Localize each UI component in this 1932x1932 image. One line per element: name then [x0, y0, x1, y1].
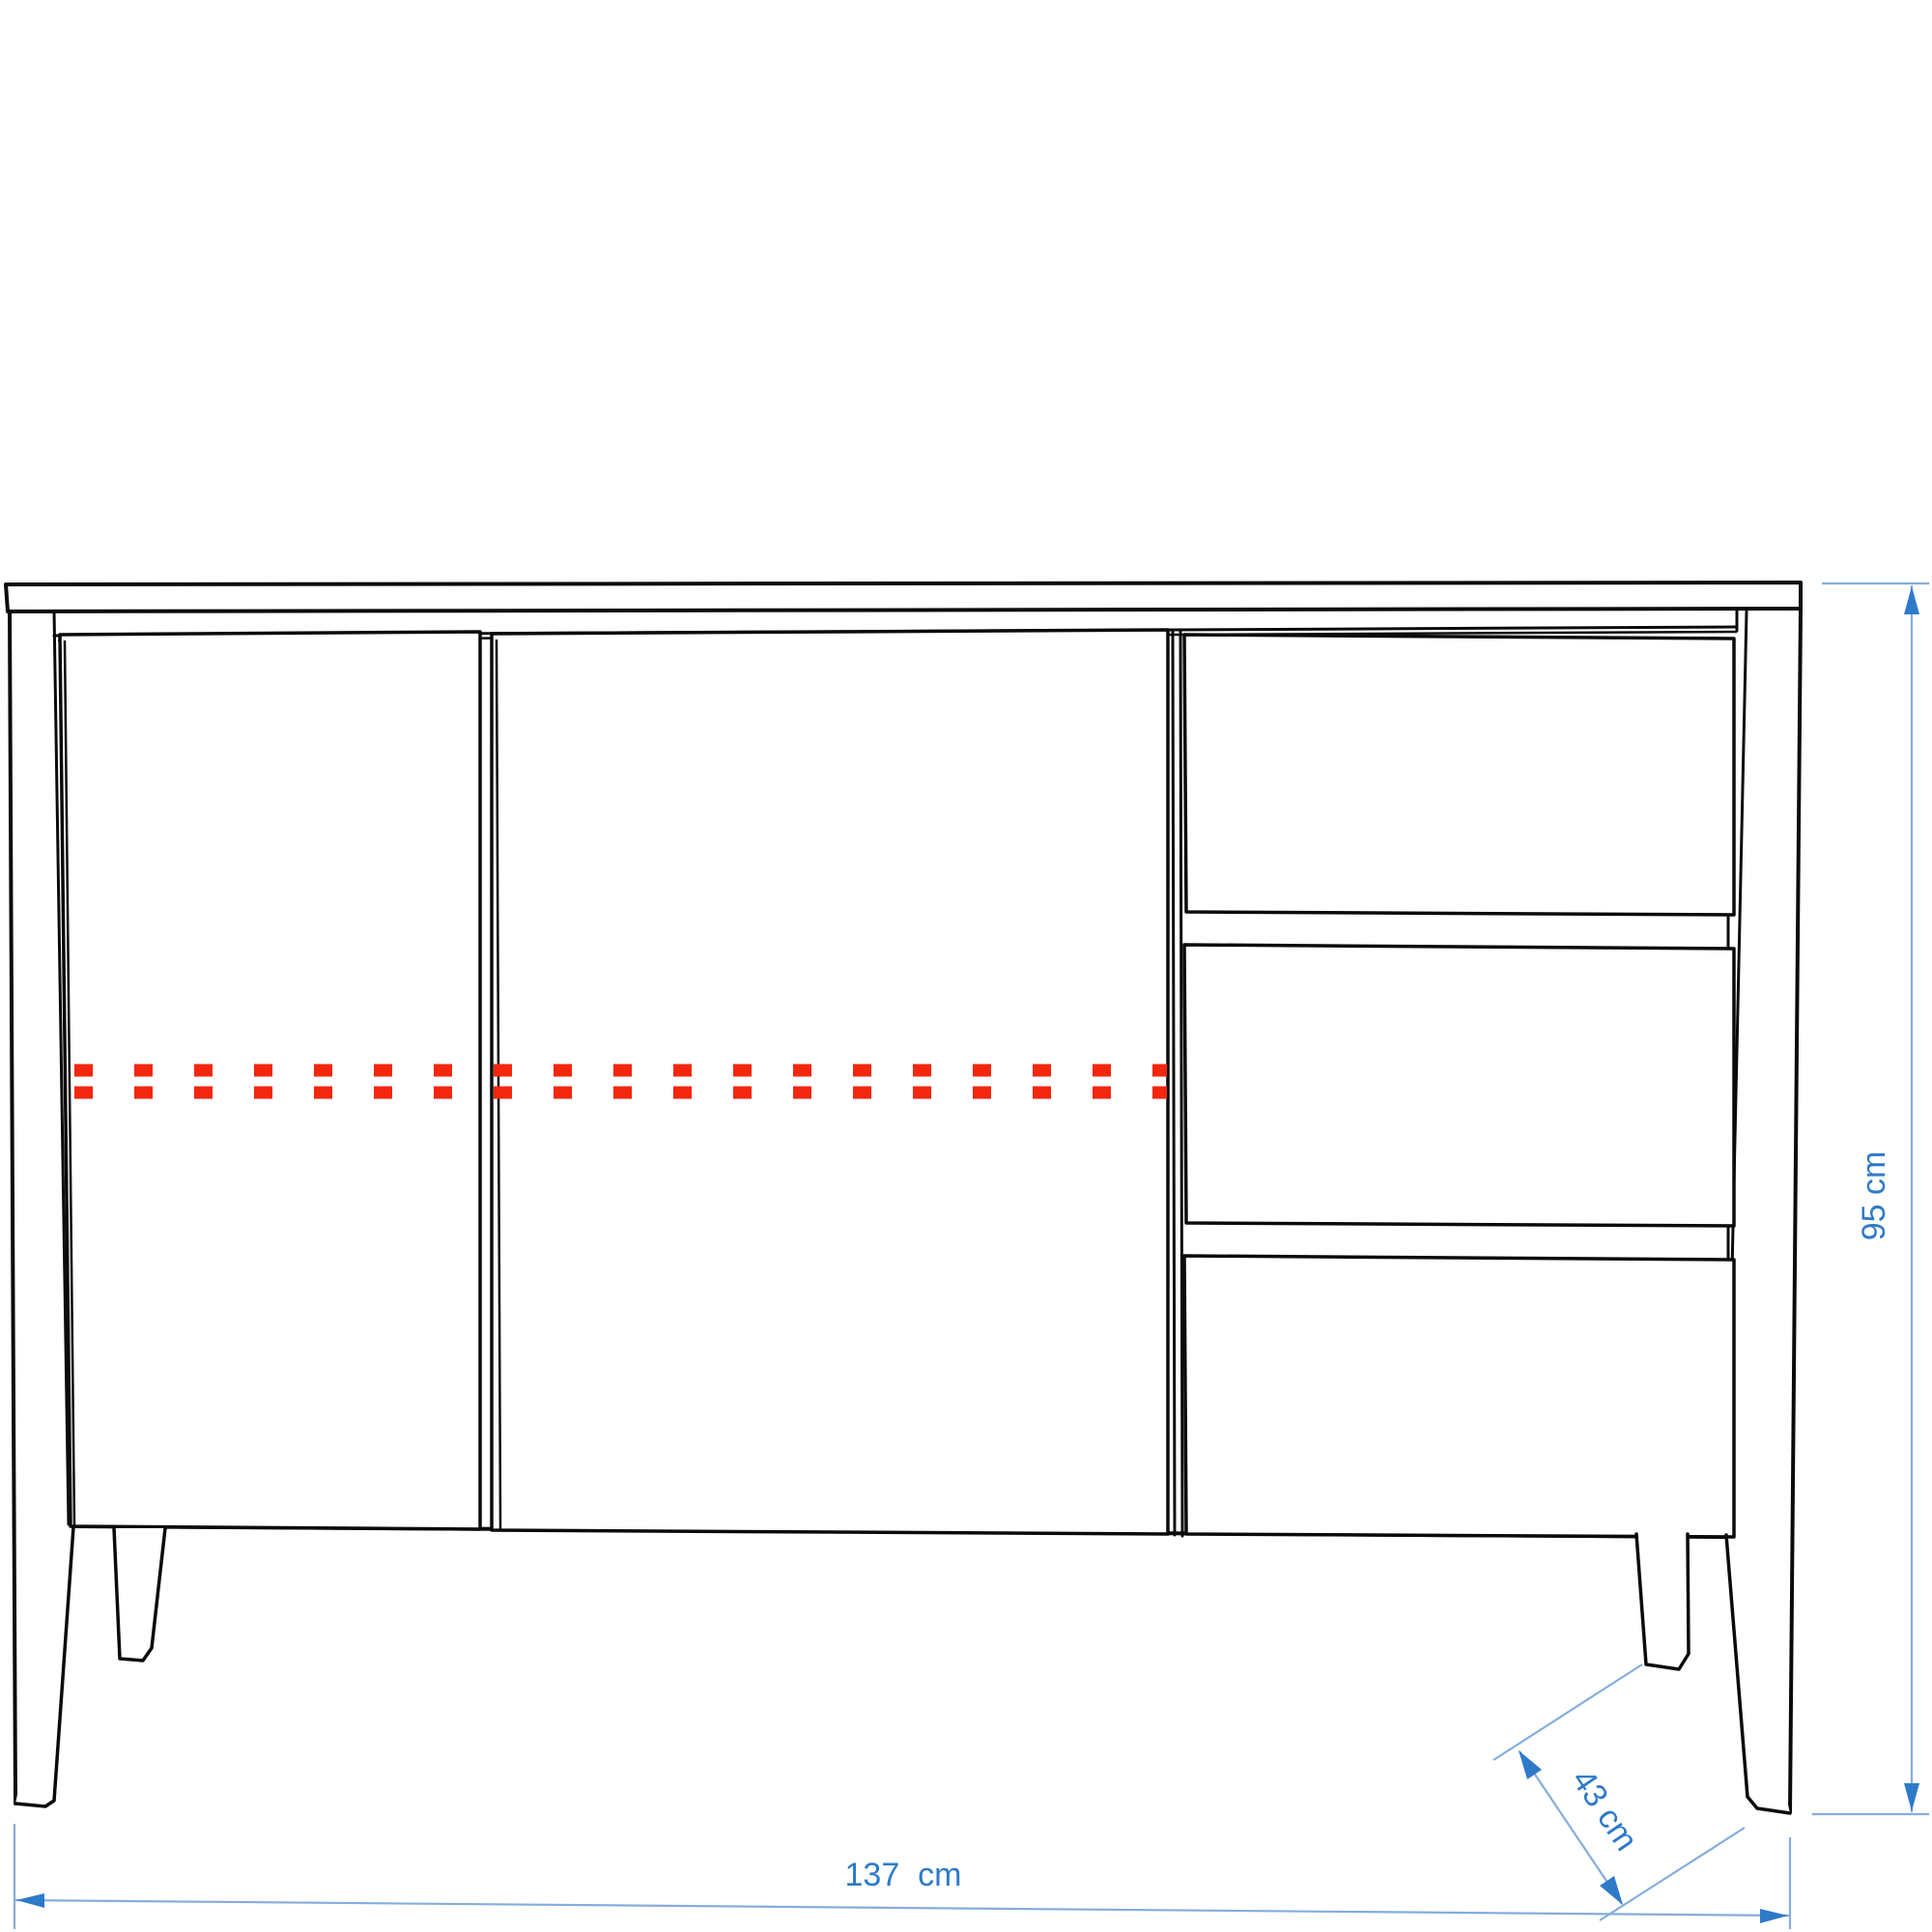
width-arrow-left-icon [16, 1893, 44, 1908]
drawer-middle-front [1184, 945, 1734, 1226]
left-side-outer-edge [10, 611, 15, 1804]
width-dimension: 137 cm [14, 1824, 1790, 1929]
top-panel [6, 582, 1801, 611]
right-side-outer-edge [1790, 609, 1801, 1812]
height-dimension-label: 95 cm [1856, 1151, 1892, 1241]
front-left-leg [15, 1527, 73, 1806]
width-dimension-line [15, 1900, 1789, 1916]
height-dimension: 95 cm [1812, 583, 1929, 1814]
legs [15, 1527, 1790, 1813]
divider-line-left [1173, 630, 1175, 1535]
right-door-front [492, 630, 1168, 1534]
width-arrow-right-icon [1760, 1909, 1788, 1923]
depth-arrow-upper-icon [1519, 1750, 1542, 1779]
rear-right-leg [1636, 1534, 1689, 1669]
center-divider [1173, 630, 1182, 1536]
height-arrow-bottom-icon [1904, 1783, 1919, 1811]
drawer-top-front [1184, 635, 1734, 915]
drawing-canvas: 95 cm 137 cm 43 cm [0, 0, 1932, 1932]
width-dimension-label: 137 cm [845, 1857, 962, 1893]
depth-arrow-lower-icon [1600, 1876, 1623, 1905]
drawer-stack [1184, 635, 1734, 1537]
height-arrow-top-icon [1904, 586, 1919, 614]
right-door [492, 630, 1168, 1534]
drawer-bottom-front [1184, 1256, 1734, 1537]
rear-left-leg [114, 1528, 165, 1661]
left-door [60, 632, 480, 1529]
depth-extension-upper [1493, 1664, 1642, 1760]
divider-line-right [1180, 630, 1182, 1536]
depth-dimension-label: 43 cm [1564, 1763, 1644, 1858]
technical-drawing-page: 95 cm 137 cm 43 cm [0, 0, 1932, 1932]
left-door-front [60, 632, 480, 1529]
front-right-leg [1726, 1535, 1790, 1813]
depth-dimension: 43 cm [1493, 1664, 1745, 1920]
